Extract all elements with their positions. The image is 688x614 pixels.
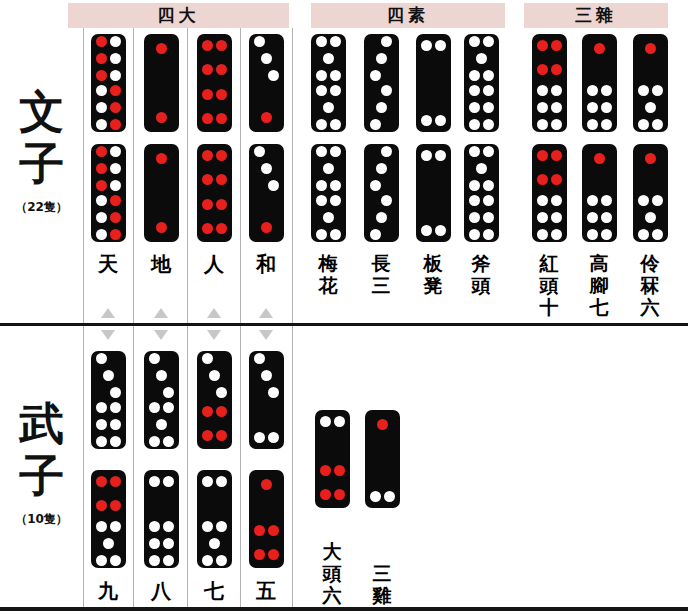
pip-red: [156, 222, 167, 233]
civil-column-label-人: 人: [204, 252, 224, 276]
pip-white: [330, 85, 341, 96]
pip-white: [323, 163, 334, 174]
group-header-sida-label: 四大: [158, 4, 200, 27]
arrow-down-icon-0: [101, 330, 115, 340]
pip-white: [537, 119, 548, 130]
pip-white: [638, 195, 649, 206]
label-char: 三: [372, 274, 391, 296]
pip-red: [110, 195, 121, 206]
pip-white: [551, 229, 562, 240]
pip-white: [421, 150, 432, 161]
pip-white: [469, 70, 480, 81]
pip-red: [537, 64, 548, 75]
pip-white: [163, 521, 174, 532]
pip-white: [330, 119, 341, 130]
pip-white: [149, 521, 160, 532]
pip-white: [323, 102, 334, 113]
pip-white: [587, 212, 598, 223]
military-section-count: （10隻）: [0, 511, 83, 528]
pip-white: [587, 102, 598, 113]
pip-red: [594, 153, 605, 164]
civil-tile-梅花-2: [311, 144, 346, 242]
pip-white: [469, 180, 480, 191]
pip-red: [216, 150, 227, 161]
pip-white: [96, 353, 107, 364]
pip-white: [202, 476, 213, 487]
pip-white: [96, 85, 107, 96]
pip-white: [216, 387, 227, 398]
civil-tile-人-2: [197, 144, 232, 242]
pip-white: [268, 432, 279, 443]
civil-tile-紅頭十-1: [532, 34, 567, 132]
column-separator-line-2: [187, 28, 188, 608]
pip-white: [652, 229, 663, 240]
pip-red: [96, 500, 107, 511]
label-char: 紅: [540, 252, 559, 274]
pip-red: [594, 43, 605, 54]
pip-white: [209, 538, 220, 549]
pip-red: [334, 489, 345, 500]
pip-white: [110, 402, 121, 413]
label-char: 雞: [373, 584, 392, 606]
label-char: 地: [151, 252, 171, 276]
pip-white: [469, 119, 480, 130]
group-header-sisu-label: 四素: [387, 4, 429, 27]
pip-white: [601, 195, 612, 206]
pip-white: [384, 491, 395, 502]
label-char: 大: [323, 540, 342, 562]
civil-tile-高腳七-2: [582, 144, 617, 242]
pip-red: [216, 406, 227, 417]
pip-white: [149, 476, 160, 487]
pip-red: [645, 43, 656, 54]
civil-section-label: 文子 （22隻）: [0, 86, 83, 216]
pip-white: [601, 85, 612, 96]
label-char: 三: [373, 562, 392, 584]
label-char: 凳: [424, 274, 443, 296]
civil-column-label-和: 和: [256, 252, 276, 276]
pip-white: [254, 353, 265, 364]
pip-white: [110, 146, 121, 157]
label-char: 頭: [472, 274, 491, 296]
pip-white: [96, 555, 107, 566]
pip-white: [587, 85, 598, 96]
pip-white: [149, 402, 160, 413]
pip-red: [216, 113, 227, 124]
pip-white: [149, 353, 160, 364]
civil-section-count: （22隻）: [0, 199, 83, 216]
pip-white: [110, 53, 121, 64]
pip-white: [316, 146, 327, 157]
pip-red: [202, 150, 213, 161]
pip-white: [334, 416, 345, 427]
pip-red: [216, 64, 227, 75]
pip-white: [96, 195, 107, 206]
pip-white: [381, 146, 392, 157]
pip-white: [483, 146, 494, 157]
group-header-sisu: 四素: [311, 3, 505, 28]
pip-red: [268, 549, 279, 560]
pip-red: [156, 112, 167, 123]
arrow-down-icon-2: [207, 330, 221, 340]
pip-white: [110, 387, 121, 398]
pip-white: [96, 419, 107, 430]
pip-red: [202, 89, 213, 100]
pip-red: [96, 70, 107, 81]
pip-red: [334, 465, 345, 476]
pip-white: [261, 163, 272, 174]
pip-red: [110, 476, 121, 487]
pip-white: [110, 163, 121, 174]
pip-white: [469, 85, 480, 96]
arrow-up-icon-1: [154, 308, 168, 318]
pip-white: [268, 180, 279, 191]
pip-white: [163, 436, 174, 447]
pip-white: [163, 555, 174, 566]
pip-white: [163, 538, 174, 549]
pip-white: [316, 195, 327, 206]
civil-tile-長三-1: [364, 34, 399, 132]
side-label-char: 文: [0, 86, 83, 138]
pip-red: [261, 222, 272, 233]
pip-white: [110, 419, 121, 430]
civil-column-label-板凳: 板凳: [424, 252, 443, 296]
pip-white: [110, 555, 121, 566]
label-char: 七: [204, 579, 224, 603]
pip-white: [469, 146, 480, 157]
label-char: 長: [372, 252, 391, 274]
label-char: 七: [590, 296, 609, 318]
pip-red: [216, 174, 227, 185]
pip-red: [261, 479, 272, 490]
pip-white: [483, 70, 494, 81]
military-tile-八-2: [144, 470, 179, 568]
pip-white: [551, 119, 562, 130]
military-section-chars: 武子: [0, 398, 83, 502]
pip-white: [476, 163, 487, 174]
pip-white: [149, 538, 160, 549]
label-char: 斧: [472, 252, 491, 274]
label-char: 九: [98, 579, 118, 603]
pip-red: [110, 229, 121, 240]
pip-white: [376, 53, 387, 64]
pip-white: [370, 119, 381, 130]
pip-white: [645, 212, 656, 223]
pip-white: [96, 102, 107, 113]
column-separator-line-0: [83, 28, 84, 608]
pip-red: [202, 430, 213, 441]
pip-white: [435, 115, 446, 126]
pip-white: [261, 370, 272, 381]
military-tile-七-2: [197, 470, 232, 568]
pip-red: [216, 89, 227, 100]
pip-white: [652, 85, 663, 96]
pip-white: [421, 225, 432, 236]
pip-white: [316, 119, 327, 130]
pip-white: [435, 150, 446, 161]
pip-white: [330, 70, 341, 81]
side-label-char: 武: [0, 398, 83, 450]
pip-white: [601, 229, 612, 240]
civil-tile-高腳七-1: [582, 34, 617, 132]
label-char: 高: [590, 252, 609, 274]
pip-white: [149, 555, 160, 566]
pip-white: [202, 521, 213, 532]
label-char: 天: [98, 252, 118, 276]
pip-white: [587, 229, 598, 240]
pip-white: [601, 212, 612, 223]
label-char: 十: [540, 296, 559, 318]
pip-red: [216, 40, 227, 51]
pip-white: [268, 387, 279, 398]
pip-red: [202, 406, 213, 417]
civil-tile-人-1: [197, 34, 232, 132]
pip-white: [330, 146, 341, 157]
pip-red: [202, 223, 213, 234]
label-char: 冧: [641, 274, 660, 296]
side-label-char: 子: [0, 138, 83, 190]
pip-white: [537, 212, 548, 223]
pip-white: [96, 402, 107, 413]
pip-white: [376, 102, 387, 113]
pip-red: [96, 146, 107, 157]
pip-red: [537, 40, 548, 51]
pip-white: [202, 353, 213, 364]
pip-white: [483, 85, 494, 96]
pip-white: [551, 212, 562, 223]
pip-red: [202, 40, 213, 51]
label-char: 人: [204, 252, 224, 276]
military-tile-大頭六: [315, 410, 350, 508]
pip-white: [381, 195, 392, 206]
pip-white: [216, 555, 227, 566]
pip-red: [551, 150, 562, 161]
pip-white: [381, 36, 392, 47]
pip-white: [320, 416, 331, 427]
pip-white: [645, 102, 656, 113]
arrow-down-icon-1: [154, 330, 168, 340]
military-tile-九-1: [91, 351, 126, 449]
label-char: 花: [319, 274, 338, 296]
pip-white: [551, 195, 562, 206]
pip-red: [202, 113, 213, 124]
military-tile-七-1: [197, 351, 232, 449]
pip-white: [587, 195, 598, 206]
pip-white: [254, 36, 265, 47]
pip-white: [202, 555, 213, 566]
pip-red: [645, 153, 656, 164]
pip-white: [323, 53, 334, 64]
pip-white: [254, 146, 265, 157]
pip-white: [601, 102, 612, 113]
pip-white: [254, 432, 265, 443]
pip-white: [261, 53, 272, 64]
pip-white: [316, 180, 327, 191]
column-separator-line-1: [133, 28, 134, 608]
military-column-label-九: 九: [98, 579, 118, 603]
group-header-sida: 四大: [68, 3, 289, 28]
label-char: 梅: [319, 252, 338, 274]
pip-white: [103, 538, 114, 549]
pip-red: [96, 163, 107, 174]
pip-white: [96, 436, 107, 447]
pip-white: [469, 212, 480, 223]
pip-white: [370, 491, 381, 502]
pip-white: [110, 70, 121, 81]
pip-white: [316, 36, 327, 47]
military-column-label-大頭六: 大頭六: [323, 540, 342, 606]
pip-white: [483, 36, 494, 47]
pip-white: [156, 419, 167, 430]
pip-red: [551, 64, 562, 75]
civil-tile-天-2: [91, 144, 126, 242]
civil-tile-梅花-1: [311, 34, 346, 132]
pip-red: [110, 212, 121, 223]
pip-white: [149, 436, 160, 447]
pip-white: [110, 436, 121, 447]
pip-white: [483, 119, 494, 130]
pip-white: [537, 195, 548, 206]
pip-white: [476, 53, 487, 64]
civil-column-label-地: 地: [151, 252, 171, 276]
section-divider-line: [0, 323, 688, 326]
pip-white: [537, 85, 548, 96]
pip-white: [551, 85, 562, 96]
pip-white: [381, 85, 392, 96]
pip-white: [638, 229, 649, 240]
pip-white: [469, 102, 480, 113]
pip-red: [551, 174, 562, 185]
pip-white: [376, 212, 387, 223]
column-separator-line-3: [240, 28, 241, 608]
pip-white: [330, 180, 341, 191]
pip-red: [96, 476, 107, 487]
pip-red: [96, 180, 107, 191]
military-tile-五-1: [249, 351, 284, 449]
pip-red: [202, 174, 213, 185]
pip-white: [601, 119, 612, 130]
label-char: 頭: [540, 274, 559, 296]
pip-white: [370, 70, 381, 81]
civil-tile-地-2: [144, 144, 179, 242]
pip-red: [202, 64, 213, 75]
pip-red: [156, 153, 167, 164]
pip-white: [370, 180, 381, 191]
side-label-char: 子: [0, 450, 83, 502]
civil-tile-板凳-1: [416, 34, 451, 132]
pip-white: [156, 370, 167, 381]
pip-red: [110, 102, 121, 113]
pip-white: [435, 40, 446, 51]
pip-white: [216, 521, 227, 532]
pip-red: [537, 150, 548, 161]
pip-white: [421, 40, 432, 51]
pip-white: [376, 163, 387, 174]
pip-white: [316, 85, 327, 96]
arrow-down-icon-3: [259, 330, 273, 340]
pip-white: [330, 36, 341, 47]
arrow-up-icon-2: [207, 308, 221, 318]
civil-tile-斧頭-1: [464, 34, 499, 132]
military-column-label-五: 五: [256, 579, 276, 603]
pip-red: [254, 549, 265, 560]
pip-white: [638, 119, 649, 130]
civil-column-label-長三: 長三: [372, 252, 391, 296]
pip-white: [483, 195, 494, 206]
civil-tile-伶冧六-2: [633, 144, 668, 242]
civil-tile-長三-2: [364, 144, 399, 242]
pip-red: [261, 112, 272, 123]
pip-white: [330, 195, 341, 206]
pip-red: [202, 199, 213, 210]
pip-white: [469, 36, 480, 47]
domino-reference-chart: 四大 四素 三雜 文子 （22隻） 武子 （10隻） 天地人和梅花長三板凳斧頭紅…: [0, 0, 688, 614]
civil-tile-地-1: [144, 34, 179, 132]
pip-white: [370, 229, 381, 240]
pip-white: [316, 229, 327, 240]
pip-white: [435, 225, 446, 236]
military-column-label-八: 八: [151, 579, 171, 603]
group-header-sanza-label: 三雜: [575, 4, 617, 27]
pip-white: [483, 102, 494, 113]
pip-red: [216, 430, 227, 441]
pip-white: [537, 229, 548, 240]
military-tile-八-1: [144, 351, 179, 449]
military-section-label: 武子 （10隻）: [0, 398, 83, 528]
pip-red: [320, 489, 331, 500]
label-char: 六: [641, 296, 660, 318]
pip-white: [110, 180, 121, 191]
military-column-label-三雞: 三雞: [373, 562, 392, 606]
label-char: 伶: [641, 252, 660, 274]
bottom-border-line: [0, 607, 688, 611]
pip-white: [216, 476, 227, 487]
pip-red: [216, 223, 227, 234]
pip-white: [103, 370, 114, 381]
pip-white: [537, 102, 548, 113]
pip-white: [323, 212, 334, 223]
arrow-up-icon-0: [101, 308, 115, 318]
civil-column-label-高腳七: 高腳七: [590, 252, 609, 318]
pip-white: [652, 195, 663, 206]
military-tile-五-2: [249, 470, 284, 568]
pip-red: [268, 525, 279, 536]
label-char: 八: [151, 579, 171, 603]
label-char: 板: [424, 252, 443, 274]
pip-red: [377, 419, 388, 430]
pip-white: [316, 70, 327, 81]
pip-white: [483, 229, 494, 240]
pip-white: [551, 102, 562, 113]
pip-white: [469, 229, 480, 240]
group-header-sanza: 三雜: [524, 3, 668, 28]
civil-tile-天-1: [91, 34, 126, 132]
civil-tile-紅頭十-2: [532, 144, 567, 242]
military-tile-九-2: [91, 470, 126, 568]
pip-white: [110, 521, 121, 532]
pip-white: [421, 115, 432, 126]
civil-tile-和-1: [249, 34, 284, 132]
civil-column-label-斧頭: 斧頭: [472, 252, 491, 296]
column-separator-line-4: [292, 28, 293, 608]
pip-red: [96, 53, 107, 64]
pip-red: [156, 43, 167, 54]
label-char: 頭: [323, 562, 342, 584]
label-char: 腳: [590, 274, 609, 296]
pip-red: [537, 174, 548, 185]
pip-white: [96, 521, 107, 532]
pip-white: [110, 36, 121, 47]
